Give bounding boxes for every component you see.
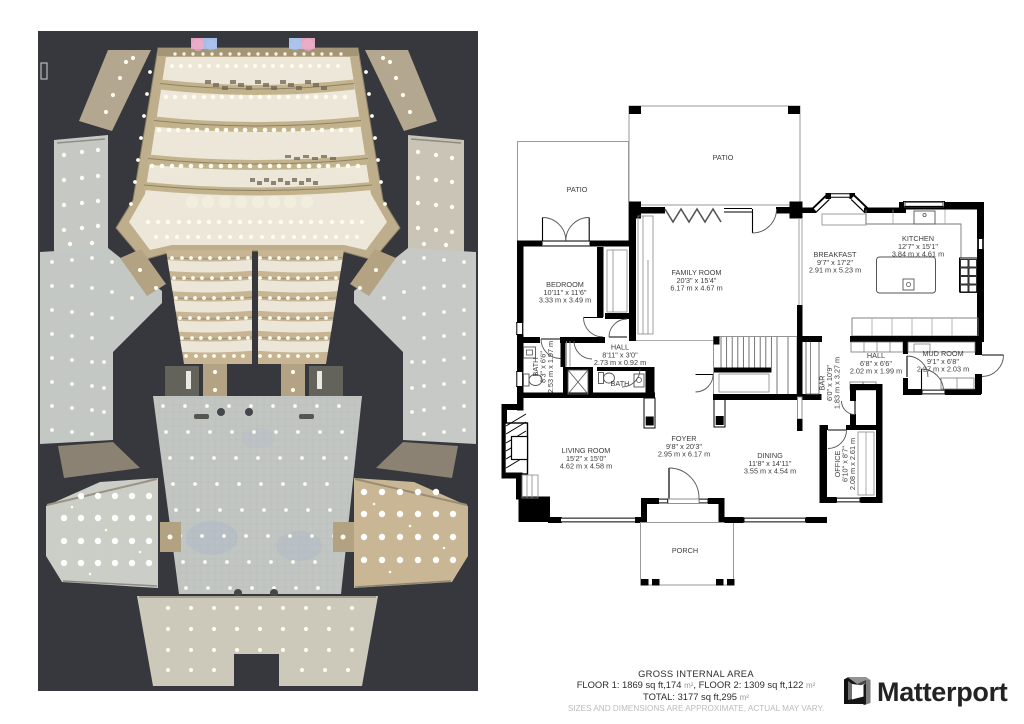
svg-text:2.95 m x 6.17 m: 2.95 m x 6.17 m: [658, 449, 710, 458]
svg-text:2.27 m x 2.03 m: 2.27 m x 2.03 m: [917, 364, 969, 373]
svg-text:2.02 m x 1.99 m: 2.02 m x 1.99 m: [850, 366, 902, 375]
svg-text:4.62 m x 4.58 m: 4.62 m x 4.58 m: [560, 461, 612, 470]
svg-text:BATH: BATH: [611, 379, 630, 388]
svg-text:2.53 m x 1.97 m: 2.53 m x 1.97 m: [546, 341, 555, 393]
svg-text:PATIO: PATIO: [713, 153, 734, 162]
svg-text:3.33 m x 3.49 m: 3.33 m x 3.49 m: [539, 295, 591, 304]
svg-text:PORCH: PORCH: [672, 546, 698, 555]
svg-text:3.84 m x 4.61 m: 3.84 m x 4.61 m: [892, 249, 944, 258]
svg-text:6.17 m x 4.67 m: 6.17 m x 4.67 m: [670, 283, 722, 292]
svg-text:2.73 m x 0.92 m: 2.73 m x 0.92 m: [594, 358, 646, 367]
svg-text:3.55 m x 4.54 m: 3.55 m x 4.54 m: [744, 466, 796, 475]
svg-text:2.91 m x 5.23 m: 2.91 m x 5.23 m: [809, 265, 861, 274]
svg-text:PATIO: PATIO: [567, 185, 588, 194]
svg-text:2.08 m x 2.61 m: 2.08 m x 2.61 m: [848, 438, 857, 490]
svg-text:1.83 m x 3.27 m: 1.83 m x 3.27 m: [833, 357, 842, 409]
